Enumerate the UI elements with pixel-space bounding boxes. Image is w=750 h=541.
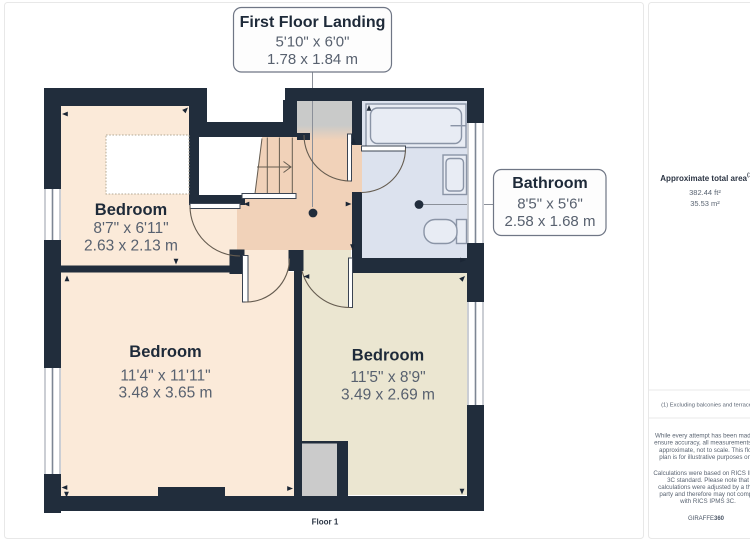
svg-text:Calculations were based on RIC: Calculations were based on RICS IPMS [653,470,750,477]
svg-text:Bedroom: Bedroom [352,347,424,365]
svg-text:35.53 m²: 35.53 m² [690,199,720,208]
svg-text:Bedroom: Bedroom [95,201,167,219]
svg-text:382.44 ft²: 382.44 ft² [689,188,721,197]
svg-text:calculations were adjusted by: calculations were adjusted by a third [658,484,750,491]
svg-text:3C standard. Please note that: 3C standard. Please note that [667,477,749,484]
svg-text:GIRAFFE360: GIRAFFE360 [688,516,725,522]
svg-text:with RICS IPMS 3C.: with RICS IPMS 3C. [679,498,736,505]
svg-text:5'10" x 6'0": 5'10" x 6'0" [276,34,350,51]
svg-text:First Floor Landing: First Floor Landing [240,14,386,31]
svg-text:2.58 x 1.68 m: 2.58 x 1.68 m [505,213,596,230]
svg-text:Floor 1: Floor 1 [312,518,339,527]
svg-text:Bedroom: Bedroom [129,343,201,361]
svg-text:party and therefore may not co: party and therefore may not comply [659,491,750,498]
svg-text:3.48 x 3.65 m: 3.48 x 3.65 m [119,385,213,402]
svg-text:(1) Excluding balconies and te: (1) Excluding balconies and terraces [661,403,750,409]
svg-text:11'5" x 8'9": 11'5" x 8'9" [350,369,425,386]
svg-text:plan is for illustrative purpo: plan is for illustrative purposes only. [659,454,750,461]
svg-text:Approximate total area(1): Approximate total area(1) [660,173,750,184]
svg-text:8'5" x 5'6": 8'5" x 5'6" [517,196,583,213]
svg-text:1.78 x 1.84 m: 1.78 x 1.84 m [267,51,358,68]
svg-text:approximate, not to scale. Thi: approximate, not to scale. This floor [659,447,750,454]
svg-text:While every attempt has been m: While every attempt has been made to [655,433,750,440]
svg-text:ensure accuracy, all measureme: ensure accuracy, all measurements are [654,440,750,447]
svg-text:11'4" x 11'11": 11'4" x 11'11" [120,368,210,385]
svg-text:2.63 x 2.13 m: 2.63 x 2.13 m [84,238,178,255]
svg-text:Bathroom: Bathroom [512,175,588,192]
svg-text:8'7" x 6'11": 8'7" x 6'11" [93,220,168,237]
svg-text:3.49 x 2.69 m: 3.49 x 2.69 m [341,387,435,404]
